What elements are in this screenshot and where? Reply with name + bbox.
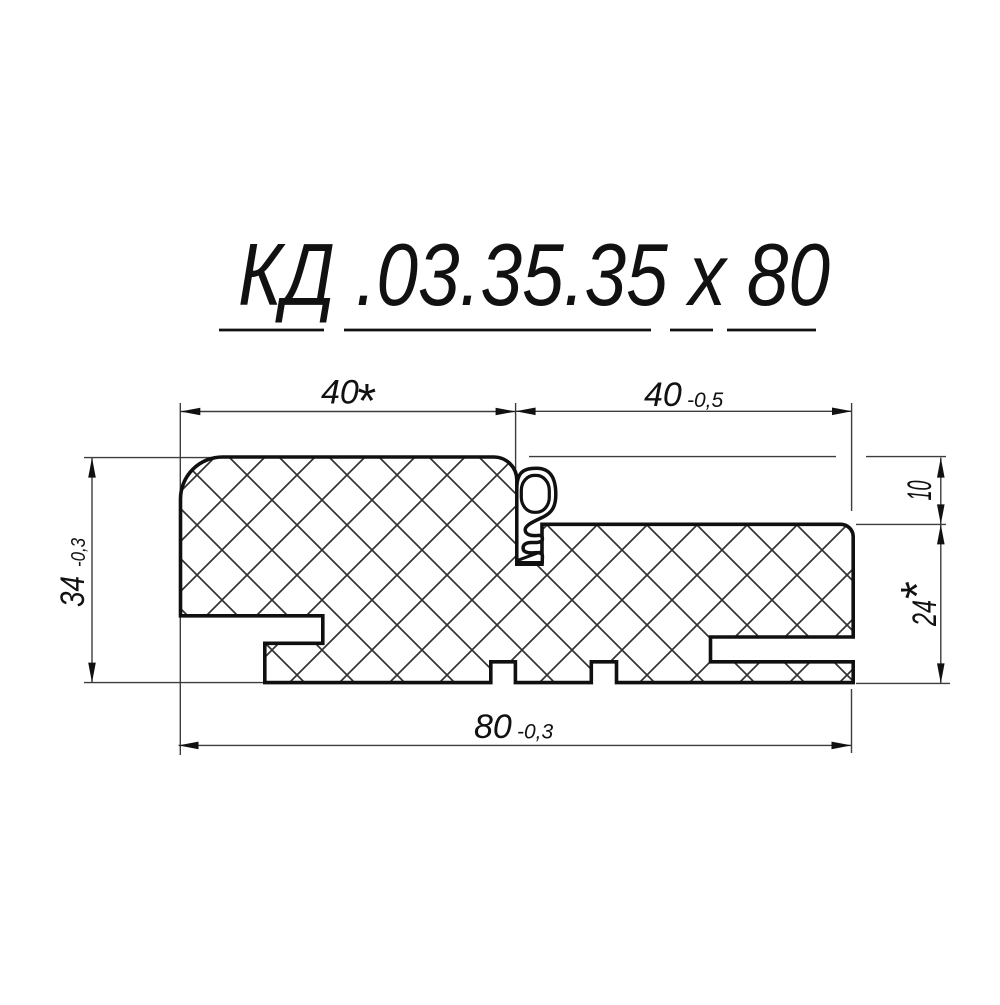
svg-text:40: 40 [321, 374, 359, 412]
svg-text:10: 10 [901, 480, 939, 500]
svg-text:24: 24 [906, 600, 944, 627]
svg-text:-0,3: -0,3 [517, 721, 554, 744]
svg-text:80: 80 [474, 708, 512, 746]
svg-text:*: * [891, 581, 943, 601]
svg-text:-0,3: -0,3 [68, 538, 90, 567]
svg-text:-0,5: -0,5 [687, 389, 724, 412]
svg-text:*: * [356, 375, 376, 428]
svg-text:КД .03.35.35 х 80: КД .03.35.35 х 80 [238, 225, 830, 324]
svg-text:40: 40 [644, 376, 682, 414]
svg-text:34: 34 [54, 576, 92, 607]
